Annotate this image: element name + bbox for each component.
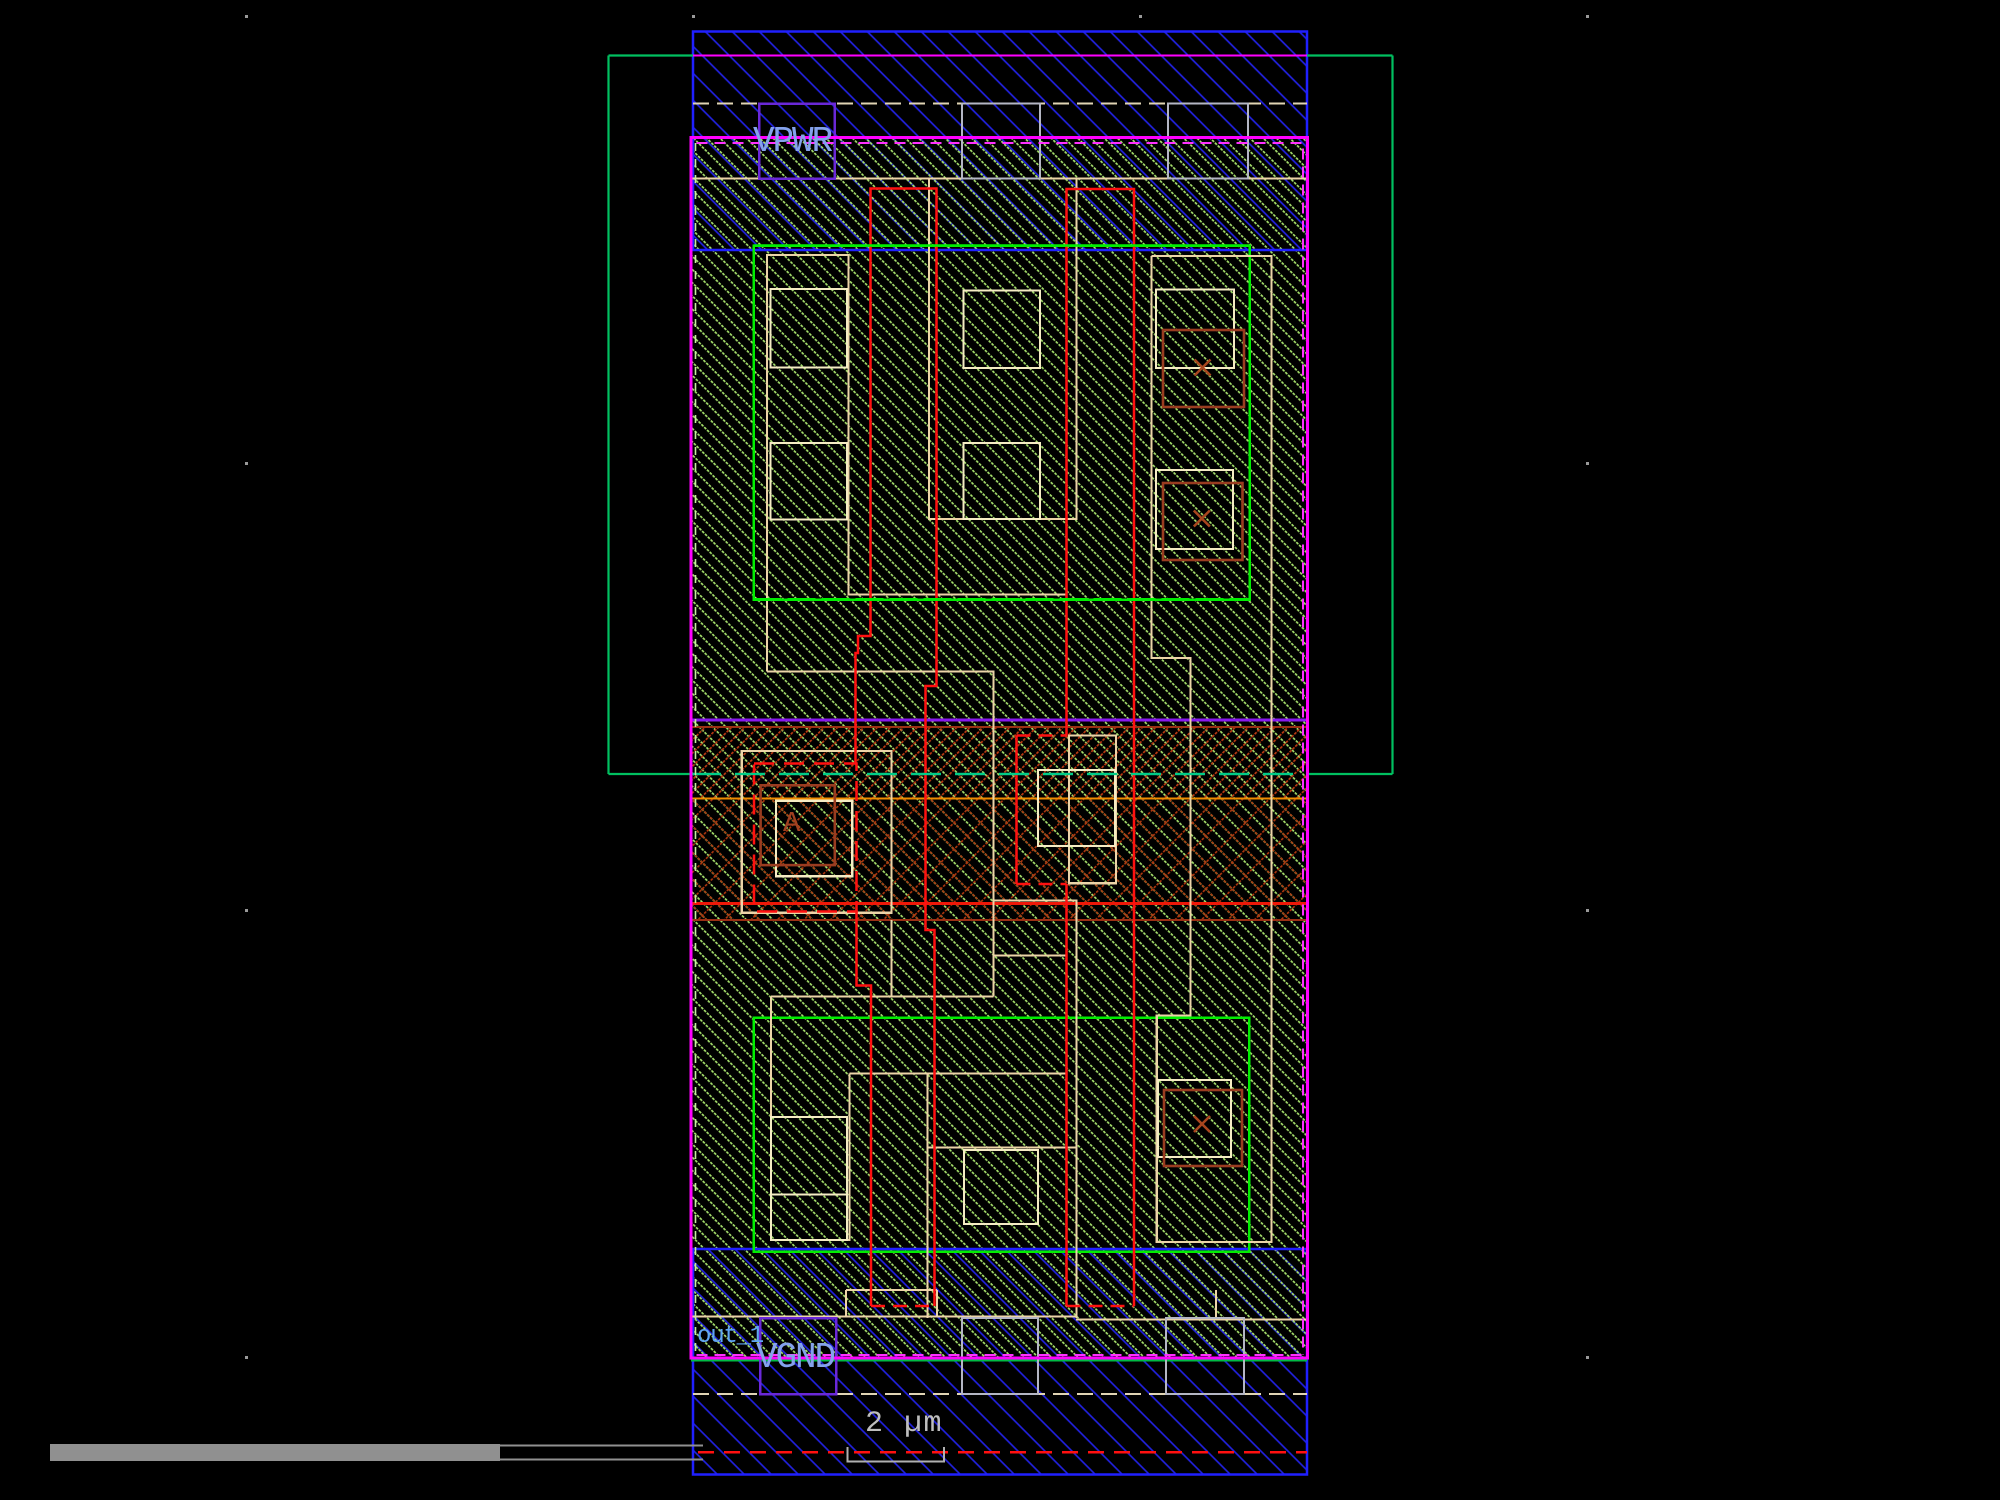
svg-text:A: A: [783, 807, 801, 840]
svg-text:VGND: VGND: [756, 1337, 835, 1378]
svg-text:2 µm: 2 µm: [865, 1407, 943, 1441]
svg-text:out_1: out_1: [697, 1323, 764, 1350]
svg-text:VPWR: VPWR: [753, 121, 833, 162]
